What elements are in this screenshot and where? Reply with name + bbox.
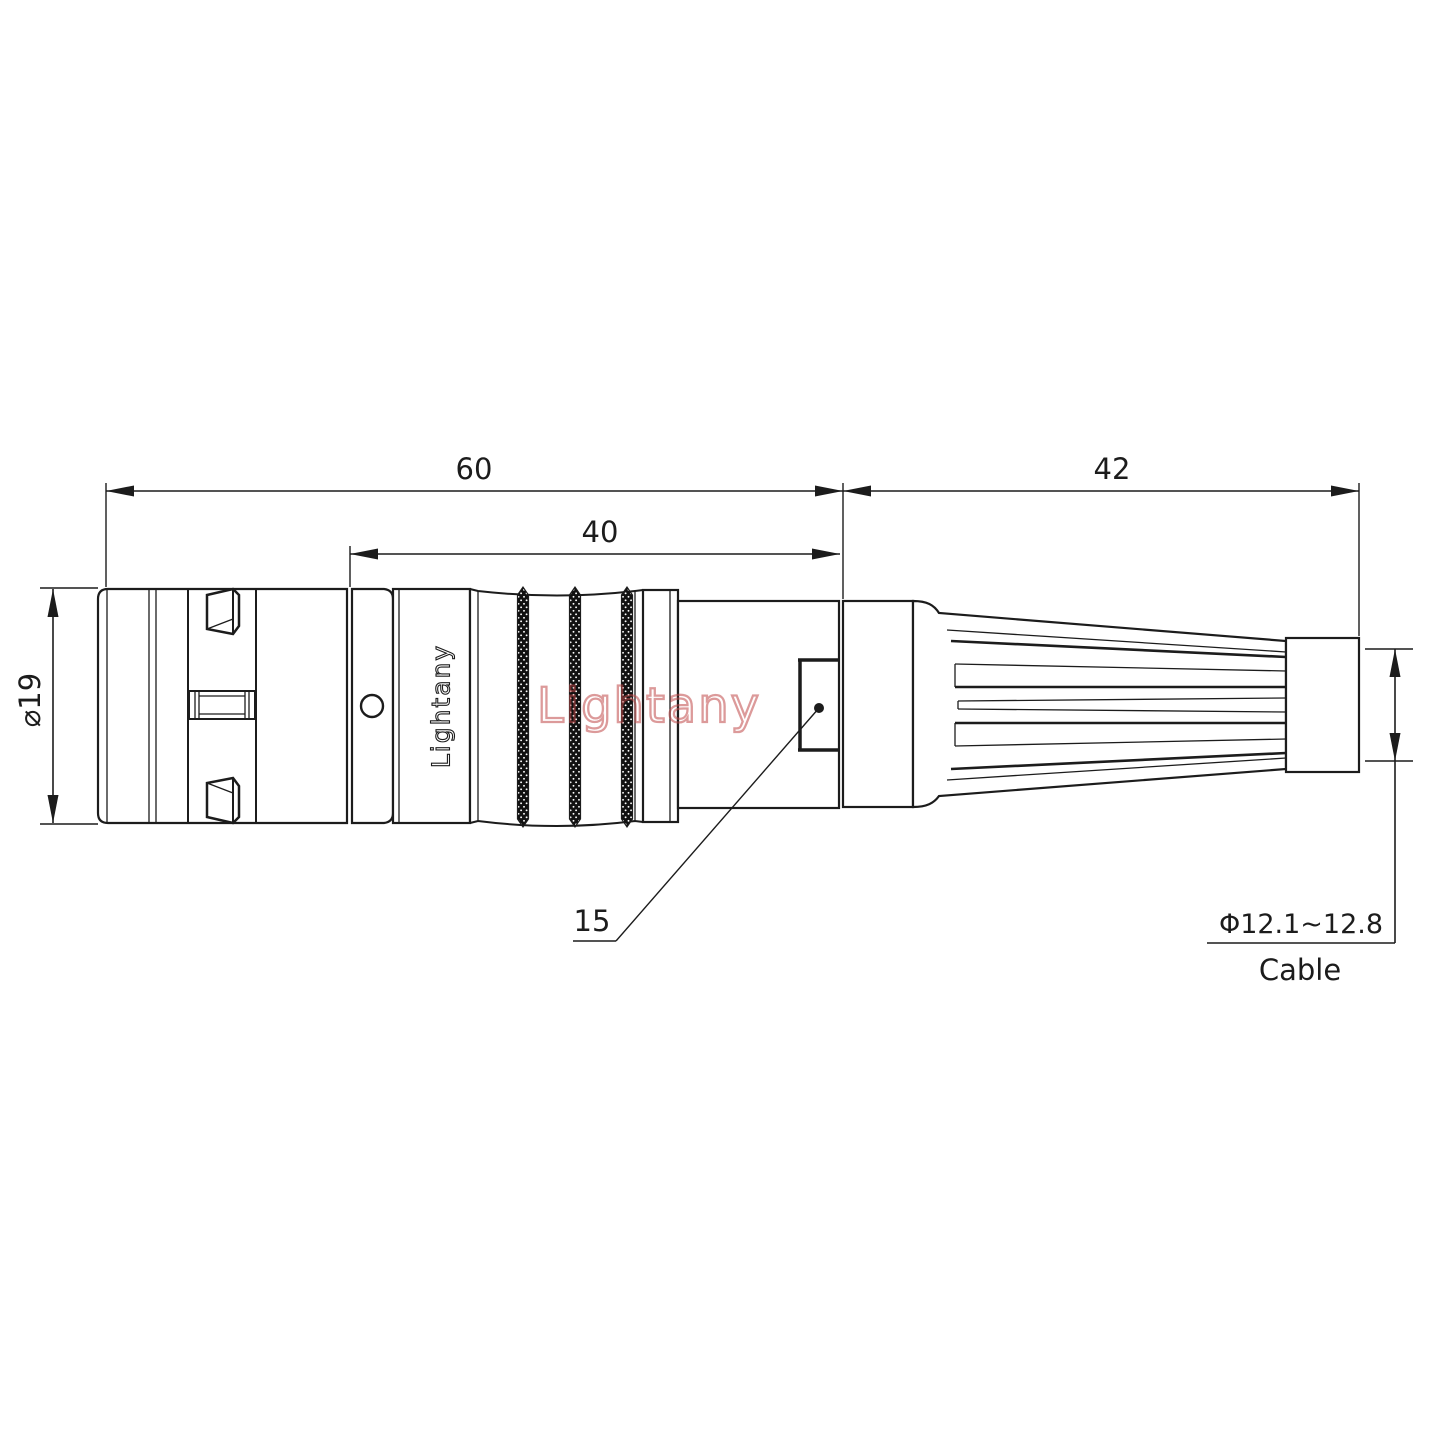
dim-total-length-label: 60 (456, 452, 493, 486)
arrowhead (1390, 649, 1401, 677)
dim-shell-diameter: ⌀19 (13, 588, 98, 824)
arrowhead (843, 486, 871, 497)
bayonet-key-bottom (207, 778, 239, 823)
key-slot (189, 691, 255, 719)
callout-15-label: 15 (574, 904, 611, 938)
arrowhead (48, 589, 59, 617)
cable-ferrule (1286, 638, 1359, 772)
arrowhead (1390, 733, 1401, 761)
dim-mid-length: 40 (350, 515, 840, 587)
dim-shell-diameter-label: ⌀19 (13, 673, 47, 727)
arrowhead (815, 486, 843, 497)
brand-watermark: Lightany (537, 678, 761, 734)
cable-label: Cable (1259, 953, 1341, 987)
bend-relief-boot (913, 601, 1286, 807)
coupling-ring (352, 589, 393, 823)
product-marking-text: Lightany (427, 644, 456, 768)
end-cap (843, 601, 913, 807)
dim-mid-length-label: 40 (582, 515, 619, 549)
arrowhead (106, 486, 134, 497)
leader-dot (814, 703, 824, 713)
cable-range-label: Φ12.1~12.8 (1219, 909, 1383, 940)
arrowhead (1331, 486, 1359, 497)
technical-drawing-page: Lightany (0, 0, 1440, 1440)
bayonet-key-top (207, 589, 239, 634)
pilot-hole (361, 695, 383, 717)
dim-rear-length-label: 42 (1094, 452, 1131, 486)
arrowhead (48, 795, 59, 823)
knurl-band (518, 587, 529, 827)
arrowhead (350, 549, 378, 560)
marking-barrel: Lightany (393, 589, 470, 823)
arrowhead (812, 549, 840, 560)
dim-total-length: 60 (106, 452, 843, 587)
connector-technical-drawing: Lightany (0, 0, 1440, 1440)
